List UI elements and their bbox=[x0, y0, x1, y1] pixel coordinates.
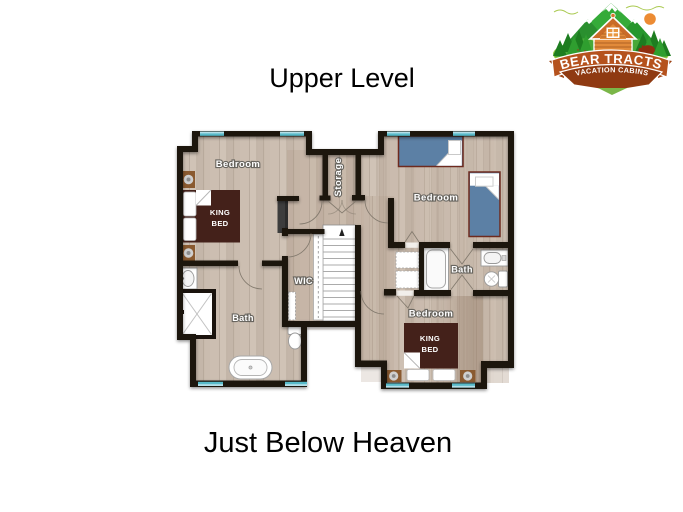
svg-text:BED: BED bbox=[212, 219, 229, 228]
svg-text:BED: BED bbox=[422, 345, 439, 354]
svg-text:Bedroom: Bedroom bbox=[414, 193, 459, 204]
svg-text:Bedroom: Bedroom bbox=[216, 159, 261, 170]
svg-text:WIC: WIC bbox=[294, 276, 313, 286]
svg-text:KING: KING bbox=[420, 334, 440, 343]
svg-text:Bath: Bath bbox=[451, 265, 473, 275]
svg-text:Bath: Bath bbox=[232, 313, 254, 323]
svg-text:Storage: Storage bbox=[333, 158, 344, 197]
svg-text:Upper Level: Upper Level bbox=[269, 63, 415, 93]
svg-text:Bedroom: Bedroom bbox=[409, 309, 454, 320]
svg-text:Just Below Heaven: Just Below Heaven bbox=[204, 427, 452, 459]
svg-text:KING: KING bbox=[210, 208, 230, 217]
